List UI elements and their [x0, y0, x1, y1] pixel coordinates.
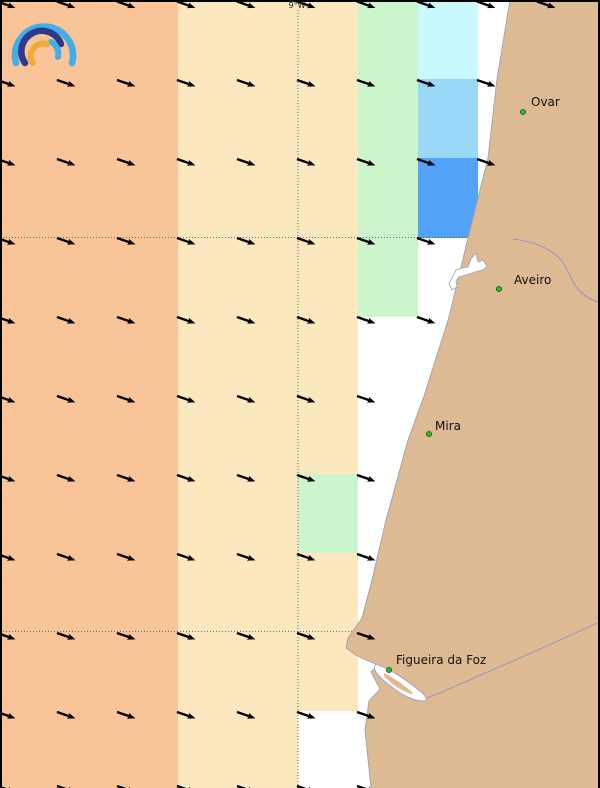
city-label: Ovar [531, 95, 560, 109]
forecast-cell [418, 79, 478, 158]
city-marker-dot[interactable] [496, 286, 501, 291]
meridian-label: 9°W [282, 1, 312, 10]
map-border-left [0, 0, 2, 788]
map-canvas: OvarAveiroMiraFigueira da Foz [0, 0, 600, 788]
forecast-cell [178, 0, 298, 788]
city-marker-dot[interactable] [386, 667, 391, 672]
brand-logo[interactable] [6, 6, 88, 72]
forecast-cell [418, 158, 478, 238]
forecast-cell [0, 0, 178, 788]
rainbow-logo-icon [6, 6, 88, 72]
city-label: Mira [435, 419, 461, 433]
forecast-cell [298, 474, 358, 553]
city-marker-dot[interactable] [520, 109, 525, 114]
city-label: Figueira da Foz [396, 653, 486, 667]
forecast-cell [418, 0, 478, 79]
wind-forecast-map: OvarAveiroMiraFigueira da Foz 9°W [0, 0, 600, 788]
city-marker-dot[interactable] [426, 431, 431, 436]
logo-arc [31, 43, 47, 63]
city-label: Aveiro [514, 273, 551, 287]
logo-arc [51, 42, 58, 57]
forecast-cell [358, 0, 418, 317]
forecast-cell [298, 0, 358, 711]
